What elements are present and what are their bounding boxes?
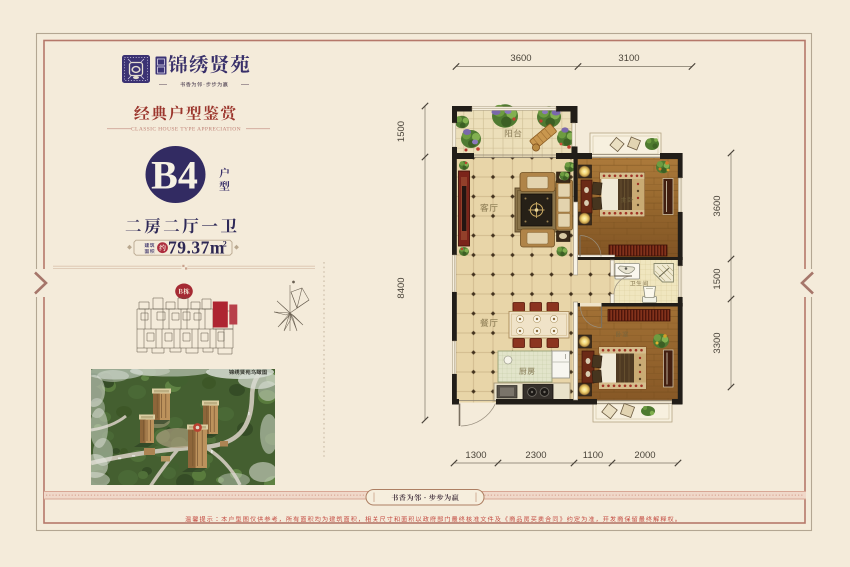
svg-text:1100: 1100 [583, 450, 603, 461]
svg-text:B4: B4 [151, 153, 198, 198]
svg-text:3300: 3300 [712, 332, 723, 353]
svg-text:3600: 3600 [510, 53, 531, 64]
svg-text:CLASSIC HOUSE TYPE APPRECIATIO: CLASSIC HOUSE TYPE APPRECIATION [131, 127, 241, 133]
svg-text:2300: 2300 [525, 450, 546, 461]
svg-text:3100: 3100 [618, 53, 639, 64]
svg-text:8400: 8400 [396, 277, 407, 298]
svg-text:2000: 2000 [634, 450, 655, 461]
svg-text:2: 2 [223, 240, 227, 249]
svg-text:1500: 1500 [396, 121, 407, 142]
svg-text:79.37m: 79.37m [168, 238, 225, 258]
svg-text:1300: 1300 [465, 450, 486, 461]
svg-text:3600: 3600 [712, 195, 723, 216]
svg-text:1500: 1500 [712, 268, 723, 289]
